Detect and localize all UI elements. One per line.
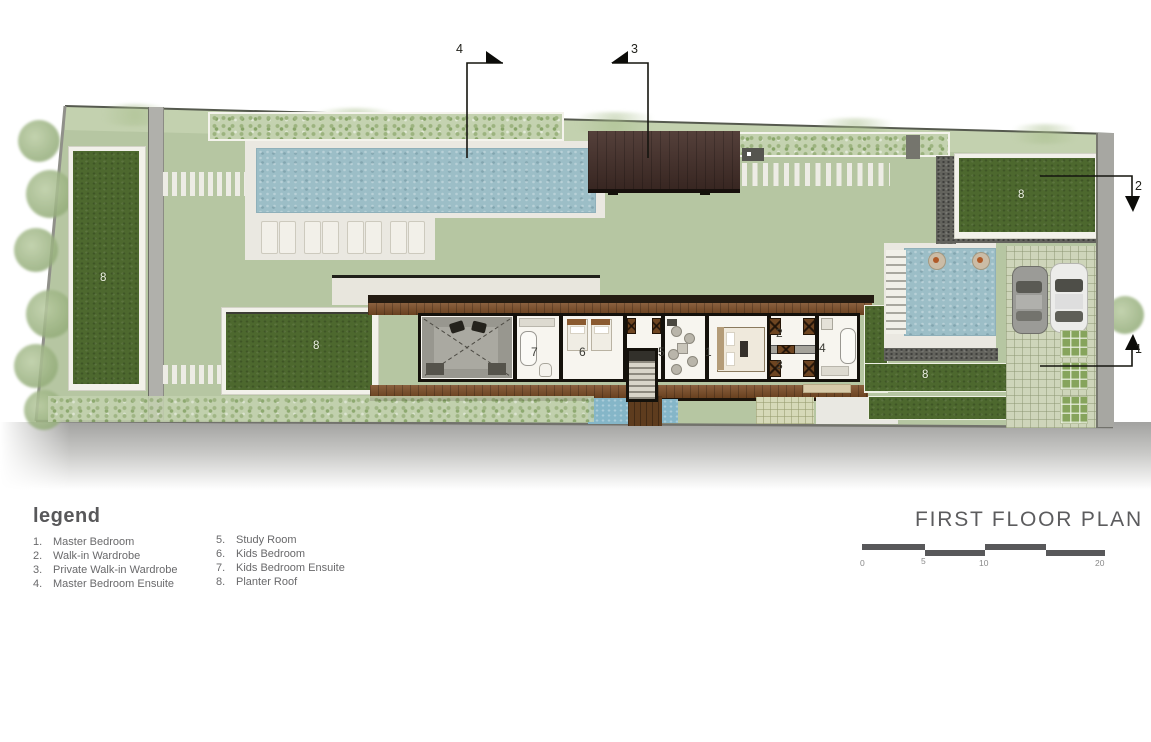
section-line-3 (612, 63, 648, 158)
legend-item: 2.Walk-in Wardrobe (33, 550, 216, 564)
room-number-master-bedroom: 1 (705, 345, 712, 359)
legend-heading: legend (33, 505, 453, 528)
legend-item: 5.Study Room (216, 534, 345, 548)
room-number-study: 5 (658, 345, 665, 359)
room-number-kids-ensuite: 7 (531, 345, 538, 359)
scale-label-0: 0 (860, 558, 865, 568)
scale-segment (1046, 550, 1105, 556)
section-flag-3 (611, 51, 628, 63)
section-flag-4 (486, 51, 503, 63)
room-number-private-wardrobe: 3 (776, 358, 783, 372)
section-flag-2 (1125, 196, 1140, 212)
section-number-3: 3 (631, 42, 638, 56)
section-line-1 (1040, 350, 1132, 366)
scale-segment (862, 544, 925, 550)
section-line-2 (1040, 176, 1132, 196)
room-number-kids-bedroom: 6 (579, 345, 586, 359)
legend-item: 1.Master Bedroom (33, 536, 216, 550)
section-number-2: 2 (1135, 179, 1142, 193)
legend: legend 1.Master Bedroom 2.Walk-in Wardro… (33, 505, 453, 592)
section-markers (0, 0, 1151, 742)
legend-column-2: 5.Study Room 6.Kids Bedroom 7.Kids Bedro… (216, 534, 345, 592)
drawing-title: FIRST FLOOR PLAN (915, 508, 1143, 532)
scale-segment (985, 544, 1046, 550)
room-number-wardrobe: 2 (776, 326, 783, 340)
planter-label: 8 (922, 369, 928, 381)
legend-column-1: 1.Master Bedroom 2.Walk-in Wardrobe 3.Pr… (33, 536, 216, 592)
section-number-1: 1 (1135, 342, 1142, 356)
planter-label: 8 (1018, 189, 1024, 201)
legend-item: 8.Planter Roof (216, 576, 345, 590)
scale-segment (925, 550, 985, 556)
section-line-4 (467, 63, 503, 158)
legend-item: 7.Kids Bedroom Ensuite (216, 562, 345, 576)
legend-item: 6.Kids Bedroom (216, 548, 345, 562)
scale-bar: 0 5 10 20 (862, 544, 1105, 568)
planter-label: 8 (100, 272, 106, 284)
room-number-master-ensuite: 4 (819, 341, 826, 355)
legend-item: 4.Master Bedroom Ensuite (33, 578, 216, 592)
scale-label-5: 5 (921, 556, 926, 566)
legend-item: 3.Private Walk-in Wardrobe (33, 564, 216, 578)
floor-plan-canvas: 4 3 2 1 8 8 8 8 7 6 5 1 2 3 4 legend 1.M… (0, 0, 1151, 742)
scale-label-20: 20 (1095, 558, 1104, 568)
planter-label: 8 (313, 340, 319, 352)
scale-label-10: 10 (979, 558, 988, 568)
section-number-4: 4 (456, 42, 463, 56)
